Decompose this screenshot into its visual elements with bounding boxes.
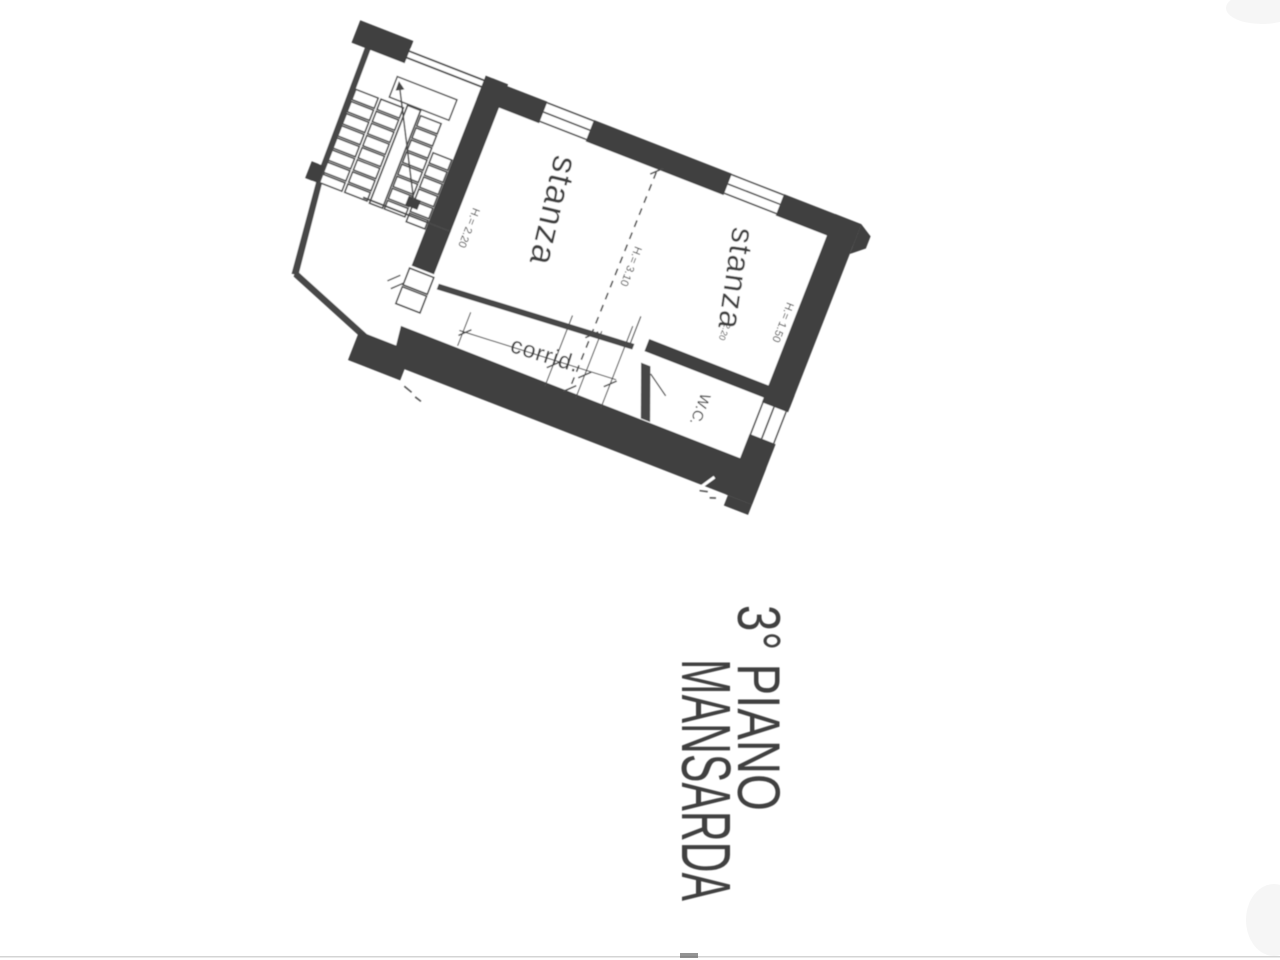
svg-text:MANSARDA: MANSARDA (667, 659, 745, 901)
